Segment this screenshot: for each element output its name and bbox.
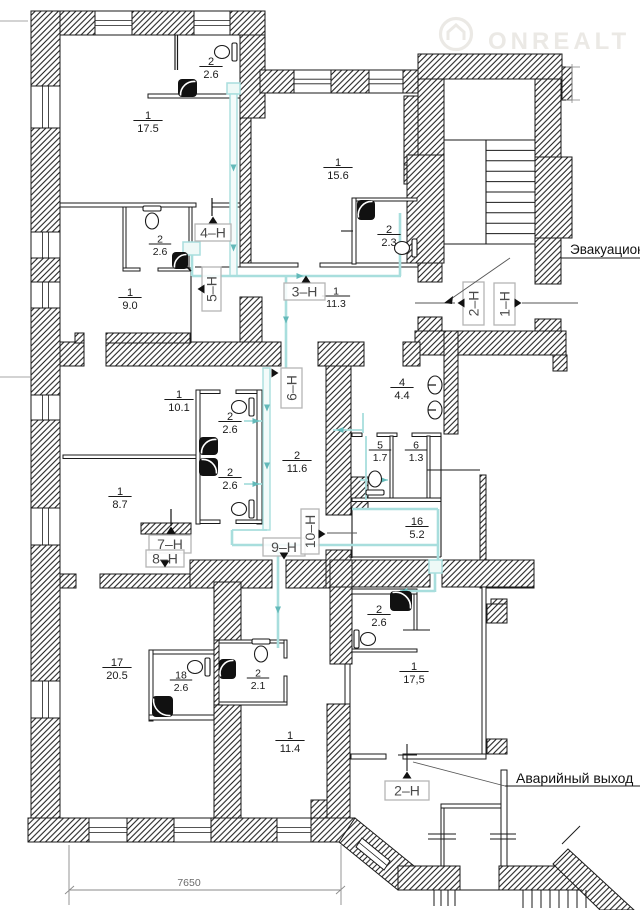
svg-text:7650: 7650 (177, 877, 201, 889)
svg-text:8.7: 8.7 (112, 499, 127, 511)
svg-text:3–Н: 3–Н (292, 284, 318, 300)
svg-text:4–Н: 4–Н (200, 225, 226, 241)
svg-text:2.6: 2.6 (371, 617, 386, 629)
svg-text:1.7: 1.7 (373, 452, 388, 464)
svg-text:2.6: 2.6 (222, 424, 237, 436)
svg-text:2.6: 2.6 (203, 69, 218, 81)
svg-text:15.6: 15.6 (327, 170, 348, 182)
svg-text:5.2: 5.2 (409, 529, 424, 541)
svg-text:9.0: 9.0 (122, 300, 137, 312)
svg-text:2–Н: 2–Н (394, 783, 420, 799)
svg-text:5–Н: 5–Н (204, 276, 220, 302)
svg-text:2.1: 2.1 (251, 680, 266, 692)
svg-text:17,5: 17,5 (403, 674, 424, 686)
svg-text:4.4: 4.4 (394, 390, 409, 402)
svg-text:1.3: 1.3 (409, 452, 424, 464)
svg-text:10.1: 10.1 (168, 402, 189, 414)
svg-text:2.3: 2.3 (381, 237, 396, 249)
svg-text:11.3: 11.3 (326, 298, 346, 310)
svg-text:10–Н: 10–Н (302, 515, 318, 548)
svg-text:11.6: 11.6 (287, 463, 308, 475)
svg-text:2.6: 2.6 (222, 480, 237, 492)
svg-text:Аварийный выход: Аварийный выход (516, 770, 633, 786)
svg-text:ONREALT: ONREALT (488, 28, 630, 55)
svg-text:20.5: 20.5 (106, 670, 127, 682)
svg-text:2.6: 2.6 (174, 682, 189, 694)
svg-text:2.6: 2.6 (153, 246, 168, 258)
svg-text:Эвакуацион: Эвакуацион (570, 242, 640, 257)
svg-text:1–Н: 1–Н (497, 291, 513, 317)
svg-text:2–Н: 2–Н (466, 291, 482, 317)
svg-text:6–Н: 6–Н (284, 375, 300, 401)
svg-text:11.4: 11.4 (280, 743, 301, 755)
svg-text:17.5: 17.5 (137, 123, 158, 135)
